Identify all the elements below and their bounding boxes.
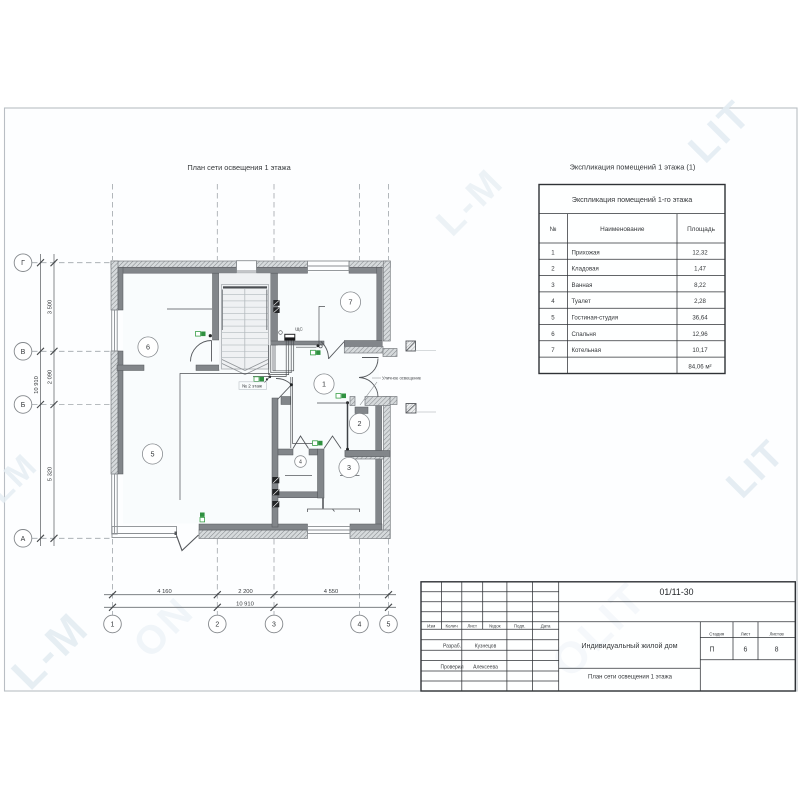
svg-text:Прихожая: Прихожая <box>572 249 600 256</box>
svg-text:Изм: Изм <box>427 624 435 629</box>
svg-text:6: 6 <box>744 647 748 654</box>
svg-text:Туалет: Туалет <box>572 298 591 305</box>
svg-text:1: 1 <box>111 622 115 629</box>
svg-text:№ 2 этаж: № 2 этаж <box>242 384 263 389</box>
svg-text:П: П <box>709 647 714 654</box>
svg-text:Лист: Лист <box>467 624 477 629</box>
svg-text:01/11-30: 01/11-30 <box>659 587 693 597</box>
svg-text:Разраб.: Разраб. <box>443 644 461 650</box>
svg-text:Индивидуальный жилой дом: Индивидуальный жилой дом <box>581 641 677 650</box>
svg-text:План сети освещения 1 этажа: План сети освещения 1 этажа <box>187 163 291 172</box>
svg-text:В: В <box>21 349 26 356</box>
svg-text:№док: №док <box>489 624 501 629</box>
svg-text:Подп.: Подп. <box>514 624 526 629</box>
svg-text:4: 4 <box>358 622 362 629</box>
svg-text:А: А <box>21 536 26 543</box>
svg-text:10 910: 10 910 <box>34 376 40 394</box>
svg-text:4 160: 4 160 <box>157 589 172 595</box>
svg-text:10,17: 10,17 <box>692 347 708 354</box>
svg-text:Спальня: Спальня <box>572 331 597 338</box>
svg-text:2: 2 <box>358 419 362 428</box>
svg-text:Экспликация помещений 1 этажа: Экспликация помещений 1 этажа (1) <box>570 163 696 172</box>
svg-text:Дата: Дата <box>541 624 551 629</box>
svg-text:Гостиная-студия: Гостиная-студия <box>572 315 619 322</box>
svg-text:Кузнецов: Кузнецов <box>475 644 497 650</box>
svg-text:3 500: 3 500 <box>48 300 54 315</box>
svg-text:1: 1 <box>322 380 326 389</box>
svg-text:ЩС: ЩС <box>295 327 303 332</box>
svg-text:Котельная: Котельная <box>572 347 602 354</box>
svg-text:№: № <box>550 226 557 233</box>
svg-text:1,47: 1,47 <box>694 266 706 273</box>
svg-text:Г: Г <box>21 260 25 267</box>
svg-text:Алексеева: Алексеева <box>473 665 498 671</box>
svg-text:Стадия: Стадия <box>709 632 725 637</box>
svg-text:Ванная: Ванная <box>572 282 593 289</box>
svg-text:Колич: Колич <box>445 624 457 629</box>
svg-text:5 320: 5 320 <box>48 467 54 482</box>
svg-text:12,32: 12,32 <box>692 249 708 256</box>
svg-text:2 090: 2 090 <box>48 370 54 385</box>
svg-text:12,96: 12,96 <box>692 331 708 338</box>
svg-text:Листов: Листов <box>769 632 784 637</box>
svg-text:Лист: Лист <box>741 632 751 637</box>
svg-text:Проверил: Проверил <box>440 665 463 671</box>
svg-text:План сети освещения 1 этажа: План сети освещения 1 этажа <box>588 675 673 681</box>
svg-text:Уличное освещение: Уличное освещение <box>382 376 422 381</box>
svg-text:Экспликация помещений 1-го эта: Экспликация помещений 1-го этажа <box>572 195 692 204</box>
svg-text:4 550: 4 550 <box>324 589 339 595</box>
svg-text:2 200: 2 200 <box>238 589 253 595</box>
svg-text:2: 2 <box>215 622 219 629</box>
svg-text:36,64: 36,64 <box>692 315 708 322</box>
svg-text:8,22: 8,22 <box>694 282 706 289</box>
svg-text:10 910: 10 910 <box>236 602 254 608</box>
svg-text:5: 5 <box>151 450 155 459</box>
svg-text:2,28: 2,28 <box>694 298 706 305</box>
svg-text:4: 4 <box>299 459 302 465</box>
svg-text:3: 3 <box>272 622 276 629</box>
svg-text:7: 7 <box>349 298 353 307</box>
svg-text:84,06 м²: 84,06 м² <box>688 364 711 371</box>
svg-text:6: 6 <box>146 343 150 352</box>
svg-text:Кладовая: Кладовая <box>572 266 599 273</box>
svg-text:8: 8 <box>775 647 779 654</box>
svg-text:3: 3 <box>347 463 351 472</box>
svg-text:Б: Б <box>21 402 26 409</box>
svg-text:Площадь: Площадь <box>687 226 715 233</box>
svg-text:Наименование: Наименование <box>600 226 645 233</box>
svg-text:5: 5 <box>387 622 391 629</box>
